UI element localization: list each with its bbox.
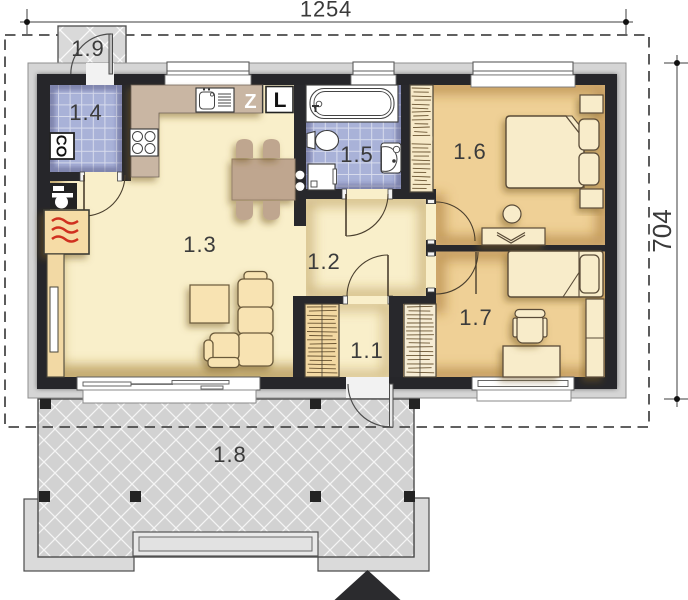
svg-text:1.1: 1.1 <box>350 338 384 363</box>
svg-text:1254: 1254 <box>300 0 352 22</box>
svg-text:704: 704 <box>647 209 677 252</box>
svg-text:1.2: 1.2 <box>307 249 341 274</box>
svg-text:CO: CO <box>53 135 70 158</box>
svg-text:Z: Z <box>244 91 256 113</box>
svg-text:L: L <box>274 89 287 112</box>
svg-text:1.4: 1.4 <box>69 100 103 125</box>
svg-text:1.9: 1.9 <box>71 36 105 61</box>
svg-text:1.5: 1.5 <box>340 142 374 167</box>
svg-text:1.6: 1.6 <box>453 139 487 164</box>
svg-text:1.8: 1.8 <box>213 442 247 467</box>
svg-text:1.7: 1.7 <box>459 305 493 330</box>
svg-text:1.3: 1.3 <box>183 232 217 257</box>
